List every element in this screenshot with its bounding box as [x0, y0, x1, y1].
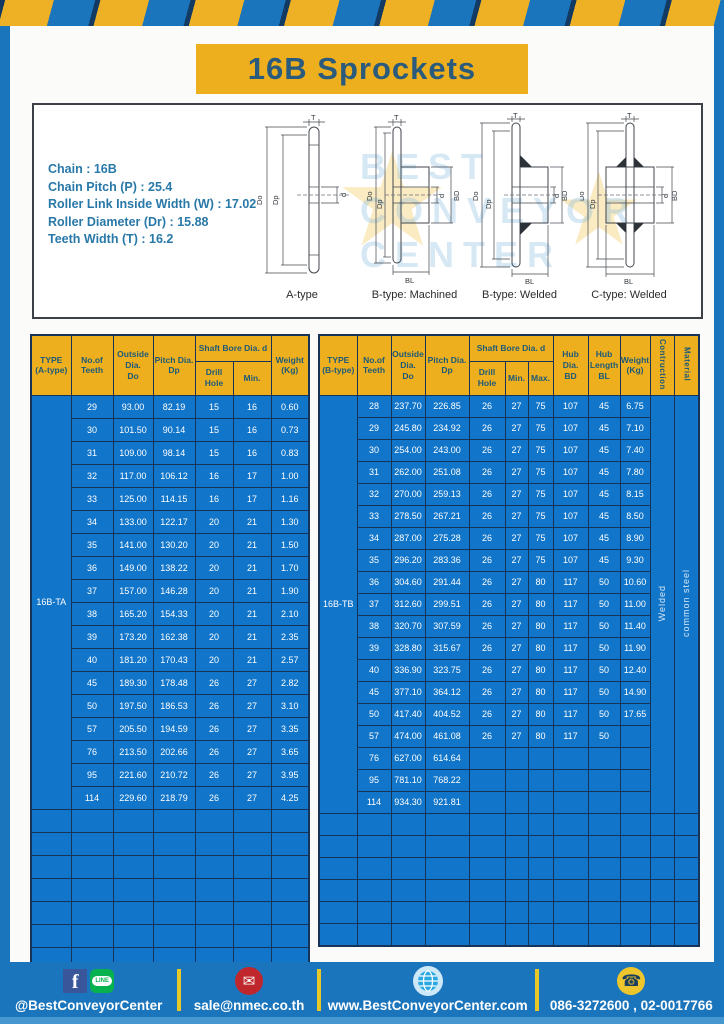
table-cell: 27 — [233, 717, 271, 740]
table-cell: 162.38 — [153, 625, 195, 648]
table-cell: 40 — [357, 659, 391, 681]
table-cell: 218.79 — [153, 786, 195, 809]
svg-text:BD: BD — [670, 190, 678, 201]
table-cell: 38 — [71, 602, 113, 625]
table-cell: 16 — [233, 441, 271, 464]
table-cell: 80 — [528, 659, 553, 681]
svg-text:BD: BD — [560, 190, 567, 201]
table-row: 31109.0098.1415160.83 — [31, 441, 309, 464]
table-cell: 45 — [588, 417, 620, 439]
table-row: 39328.80315.672627801175011.90 — [319, 637, 699, 659]
table-cell: 226.85 — [425, 395, 469, 417]
table-row: 45377.10364.122627801175014.90 — [319, 681, 699, 703]
table-cell — [505, 813, 528, 835]
table-cell: 117 — [553, 725, 588, 747]
table-cell — [469, 923, 505, 946]
table-cell: 26 — [195, 671, 233, 694]
table-row: 30101.5090.1415160.73 — [31, 418, 309, 441]
table-cell: 95 — [71, 763, 113, 786]
table-cell: 80 — [528, 725, 553, 747]
table-cell: 2.57 — [271, 648, 309, 671]
table-cell — [674, 813, 699, 835]
table-cell: 38 — [357, 615, 391, 637]
table-cell — [195, 924, 233, 947]
table-row: 36149.00138.2220211.70 — [31, 556, 309, 579]
table-cell: 37 — [71, 579, 113, 602]
table-cell: 82.19 — [153, 395, 195, 418]
footer-social[interactable]: f LINE @BestConveyorCenter — [0, 962, 177, 1017]
table-cell: 90.14 — [153, 418, 195, 441]
mail-icon[interactable]: ✉ — [235, 967, 263, 995]
table-row: 40181.20170.4320212.57 — [31, 648, 309, 671]
table-cell: 315.67 — [425, 637, 469, 659]
table-cell: 114 — [357, 791, 391, 813]
table-cell — [528, 857, 553, 879]
table-cell — [233, 901, 271, 924]
table-cell: 254.00 — [391, 439, 425, 461]
table-cell — [650, 813, 674, 835]
table-cell: 259.13 — [425, 483, 469, 505]
table-cell — [505, 791, 528, 813]
col-header-shaft-bore: Shaft Bore Dia. d — [469, 335, 553, 361]
table-cell: 0.60 — [271, 395, 309, 418]
table-cell: 149.00 — [113, 556, 153, 579]
table-row: 34287.00275.28262775107458.90 — [319, 527, 699, 549]
table-cell — [588, 769, 620, 791]
table-cell — [620, 769, 650, 791]
table-cell: 20 — [195, 510, 233, 533]
table-cell: 26 — [469, 395, 505, 417]
diagram-a-type: T Do Dp d A-type — [247, 113, 357, 301]
table-cell — [319, 901, 357, 923]
phone-numbers[interactable]: 086-3272600 , 02-0017766 — [550, 998, 713, 1013]
table-cell: 283.36 — [425, 549, 469, 571]
table-cell — [319, 813, 357, 835]
table-cell: 26 — [469, 725, 505, 747]
table-cell — [113, 878, 153, 901]
table-cell — [620, 901, 650, 923]
table-cell — [553, 813, 588, 835]
table-cell — [425, 901, 469, 923]
table-cell — [528, 879, 553, 901]
svg-text:Do: Do — [472, 191, 480, 201]
table-cell: 141.00 — [113, 533, 153, 556]
table-cell — [553, 747, 588, 769]
table-cell: 15 — [195, 441, 233, 464]
table-cell: 336.90 — [391, 659, 425, 681]
table-cell — [505, 835, 528, 857]
table-cell — [553, 879, 588, 901]
col-header-max: Max. — [528, 361, 553, 395]
table-cell: 15 — [195, 418, 233, 441]
sprocket-c-welded-drawing: T Do Dp d BD BL — [580, 113, 678, 285]
page-title-box: 16B Sprockets — [196, 44, 528, 94]
table-cell: 107 — [553, 439, 588, 461]
table-row: 50417.40404.522627801175017.65 — [319, 703, 699, 725]
table-cell — [425, 923, 469, 946]
table-cell — [271, 855, 309, 878]
empty-table-row — [31, 855, 309, 878]
table-row: 40336.90323.752627801175012.40 — [319, 659, 699, 681]
svg-text:Do: Do — [580, 191, 586, 201]
table-cell: 291.44 — [425, 571, 469, 593]
table-cell — [528, 747, 553, 769]
table-cell — [31, 855, 71, 878]
col-header-outside-dia: Outside Dia. Do — [391, 335, 425, 395]
table-cell: 122.17 — [153, 510, 195, 533]
table-cell: 26 — [469, 549, 505, 571]
diagram-c-welded: T Do Dp d BD BL C-type: — [580, 113, 678, 301]
table-cell: 76 — [71, 740, 113, 763]
globe-icon[interactable] — [413, 966, 443, 996]
svg-text:Dp: Dp — [271, 195, 280, 205]
table-row: 29245.80234.92262775107457.10 — [319, 417, 699, 439]
email-address[interactable]: sale@nmec.co.th — [194, 998, 305, 1013]
svg-text:T: T — [311, 113, 316, 122]
table-cell: 278.50 — [391, 505, 425, 527]
table-cell: 26 — [195, 694, 233, 717]
table-row: 35296.20283.36262775107459.30 — [319, 549, 699, 571]
table-cell — [153, 901, 195, 924]
table-row: 57474.00461.0826278011750 — [319, 725, 699, 747]
table-cell — [620, 813, 650, 835]
table-cell — [71, 832, 113, 855]
empty-table-row — [319, 857, 699, 879]
table-cell: 117 — [553, 637, 588, 659]
table-cell — [31, 878, 71, 901]
diagram-caption: B-type: Machined — [372, 289, 458, 301]
empty-table-row — [319, 923, 699, 946]
table-cell — [391, 879, 425, 901]
table-cell — [588, 791, 620, 813]
table-row: 76213.50202.6626273.65 — [31, 740, 309, 763]
table-cell: 461.08 — [425, 725, 469, 747]
table-cell — [319, 923, 357, 946]
table-cell: 178.48 — [153, 671, 195, 694]
table-cell — [425, 879, 469, 901]
facebook-icon[interactable]: f — [63, 969, 87, 993]
table-cell — [650, 879, 674, 901]
table-cell: 21 — [233, 625, 271, 648]
table-cell — [71, 924, 113, 947]
table-cell: 21 — [233, 556, 271, 579]
table-row: 16B-TA2993.0082.1915160.60 — [31, 395, 309, 418]
table-cell — [113, 855, 153, 878]
table-cell: 50 — [588, 725, 620, 747]
table-row: 38320.70307.592627801175011.40 — [319, 615, 699, 637]
table-cell — [271, 924, 309, 947]
table-cell: 93.00 — [113, 395, 153, 418]
table-cell: 107 — [553, 549, 588, 571]
table-cell: 75 — [528, 395, 553, 417]
table-cell — [528, 813, 553, 835]
table-cell — [469, 769, 505, 791]
empty-table-row — [31, 924, 309, 947]
footer-bottom-strip — [0, 1017, 724, 1024]
table-cell — [469, 813, 505, 835]
table-cell: 50 — [357, 703, 391, 725]
table-cell: 98.14 — [153, 441, 195, 464]
svg-text:BL: BL — [405, 276, 414, 285]
table-row: 57205.50194.5926273.35 — [31, 717, 309, 740]
table-cell: 50 — [588, 703, 620, 725]
type-merged-cell: 16B-TB — [319, 395, 357, 813]
table-cell — [588, 747, 620, 769]
table-cell: 45 — [71, 671, 113, 694]
table-cell: 117.00 — [113, 464, 153, 487]
table-cell: 16 — [195, 487, 233, 510]
table-cell: 312.60 — [391, 593, 425, 615]
table-cell: 80 — [528, 681, 553, 703]
table-cell: 27 — [505, 395, 528, 417]
table-cell — [357, 835, 391, 857]
col-header-teeth: No.of Teeth — [71, 335, 113, 395]
table-cell: 165.20 — [113, 602, 153, 625]
table-cell — [505, 769, 528, 791]
table-cell: 26 — [469, 615, 505, 637]
table-cell: 1.50 — [271, 533, 309, 556]
table-row: 95221.60210.7226273.95 — [31, 763, 309, 786]
table-cell: 26 — [469, 703, 505, 725]
table-row: 37312.60299.512627801175011.00 — [319, 593, 699, 615]
diagram-caption: B-type: Welded — [482, 289, 557, 301]
table-cell — [553, 901, 588, 923]
table-cell — [357, 813, 391, 835]
table-cell: 107 — [553, 417, 588, 439]
construction-merged-cell: Welded — [650, 395, 674, 813]
table-cell: 221.60 — [113, 763, 153, 786]
phone-icon[interactable]: ☎ — [617, 967, 645, 995]
table-cell: 26 — [469, 571, 505, 593]
table-cell: 768.22 — [425, 769, 469, 791]
table-row: 31262.00251.08262775107457.80 — [319, 461, 699, 483]
table-cell: 75 — [528, 417, 553, 439]
table-cell — [153, 878, 195, 901]
table-cell: 34 — [357, 527, 391, 549]
table-cell — [391, 835, 425, 857]
table-cell — [271, 878, 309, 901]
table-cell — [357, 857, 391, 879]
chain-specs: Chain : 16B Chain Pitch (P) : 25.4 Rolle… — [48, 161, 256, 249]
table-cell — [505, 901, 528, 923]
table-cell — [620, 857, 650, 879]
table-cell: 133.00 — [113, 510, 153, 533]
table-cell: 2.35 — [271, 625, 309, 648]
table-cell: 101.50 — [113, 418, 153, 441]
svg-text:BL: BL — [525, 277, 534, 285]
table-cell — [31, 809, 71, 832]
table-cell: 31 — [71, 441, 113, 464]
table-cell: 75 — [528, 483, 553, 505]
table-cell: 8.90 — [620, 527, 650, 549]
table-cell: 75 — [528, 549, 553, 571]
table-cell — [528, 923, 553, 946]
website-url[interactable]: www.BestConveyorCenter.com — [328, 998, 528, 1013]
table-cell: 20 — [195, 579, 233, 602]
svg-text:Dp: Dp — [588, 199, 597, 209]
table-cell — [233, 924, 271, 947]
svg-text:T: T — [627, 113, 632, 120]
table-cell: 80 — [528, 593, 553, 615]
footer-email[interactable]: ✉ sale@nmec.co.th — [181, 962, 316, 1017]
table-cell — [650, 923, 674, 946]
col-header-pitch-dia: Pitch Dia. Dp — [153, 335, 195, 395]
table-cell: 4.25 — [271, 786, 309, 809]
table-cell: 50 — [588, 659, 620, 681]
table-cell — [528, 791, 553, 813]
table-cell: 26 — [469, 659, 505, 681]
col-header-min: Min. — [505, 361, 528, 395]
empty-table-row — [319, 835, 699, 857]
table-cell — [153, 855, 195, 878]
table-row: 39173.20162.3820212.35 — [31, 625, 309, 648]
table-cell: 50 — [588, 681, 620, 703]
empty-table-row — [319, 813, 699, 835]
table-cell: 7.40 — [620, 439, 650, 461]
table-cell: 14.90 — [620, 681, 650, 703]
table-cell: 107 — [553, 395, 588, 417]
table-cell — [357, 879, 391, 901]
table-cell: 11.40 — [620, 615, 650, 637]
table-cell: 197.50 — [113, 694, 153, 717]
table-cell — [233, 809, 271, 832]
table-cell — [71, 901, 113, 924]
table-cell: 27 — [233, 740, 271, 763]
empty-table-row — [31, 832, 309, 855]
table-cell — [153, 832, 195, 855]
sprocket-b-machined-drawing: T Do Dp d BD BL — [367, 113, 462, 285]
table-cell: 417.40 — [391, 703, 425, 725]
table-cell: 26 — [195, 740, 233, 763]
table-cell: 0.73 — [271, 418, 309, 441]
table-cell: 80 — [528, 703, 553, 725]
table-cell — [153, 809, 195, 832]
footer: f LINE @BestConveyorCenter ✉ sale@nmec.c… — [0, 962, 724, 1024]
table-cell — [674, 879, 699, 901]
table-cell: 45 — [588, 505, 620, 527]
table-cell: 107 — [553, 461, 588, 483]
svg-text:Dp: Dp — [375, 199, 384, 209]
table-cell: 26 — [469, 461, 505, 483]
table-cell: 21 — [233, 533, 271, 556]
content-area: 16B Sprockets ★ ★ BEST CONVEYOR CENTER C… — [10, 26, 714, 962]
table-cell: 404.52 — [425, 703, 469, 725]
table-cell: 304.60 — [391, 571, 425, 593]
table-cell — [153, 924, 195, 947]
table-cell: 11.90 — [620, 637, 650, 659]
table-cell — [588, 835, 620, 857]
table-cell: 45 — [588, 461, 620, 483]
table-cell: 921.81 — [425, 791, 469, 813]
footer-website[interactable]: www.BestConveyorCenter.com — [321, 962, 535, 1017]
svg-text:BL: BL — [624, 277, 633, 285]
table-row: 50197.50186.5326273.10 — [31, 694, 309, 717]
page-title: 16B Sprockets — [248, 51, 476, 87]
table-cell: 30 — [71, 418, 113, 441]
table-cell — [319, 879, 357, 901]
table-cell: 1.16 — [271, 487, 309, 510]
table-cell: 50 — [588, 593, 620, 615]
table-cell: 27 — [505, 659, 528, 681]
table-cell: 170.43 — [153, 648, 195, 671]
table-cell — [233, 878, 271, 901]
table-cell — [620, 923, 650, 946]
table-cell — [71, 855, 113, 878]
table-cell: 45 — [588, 483, 620, 505]
table-cell: 189.30 — [113, 671, 153, 694]
table-cell: 237.70 — [391, 395, 425, 417]
svg-text:Dp: Dp — [484, 199, 493, 209]
table-cell — [233, 855, 271, 878]
empty-table-row — [31, 901, 309, 924]
table-cell: 154.33 — [153, 602, 195, 625]
catalog-page: 16B Sprockets ★ ★ BEST CONVEYOR CENTER C… — [0, 0, 724, 1024]
table-cell: 26 — [469, 527, 505, 549]
social-handle[interactable]: @BestConveyorCenter — [15, 998, 162, 1013]
table-cell: 27 — [505, 461, 528, 483]
table-cell: 57 — [71, 717, 113, 740]
table-cell: 3.65 — [271, 740, 309, 763]
diagram-b-welded: T Do Dp d BD BL B-type: — [472, 113, 567, 301]
table-cell: 20 — [195, 533, 233, 556]
col-header-material: Material — [674, 335, 699, 395]
spec-line-chain: Chain : 16B — [48, 161, 256, 179]
table-cell — [528, 835, 553, 857]
table-row: 33125.00114.1516171.16 — [31, 487, 309, 510]
col-header-weight: Weight (Kg) — [620, 335, 650, 395]
table-cell: 21 — [233, 602, 271, 625]
table-cell: 8.50 — [620, 505, 650, 527]
table-cell: 27 — [505, 483, 528, 505]
table-cell: 29 — [357, 417, 391, 439]
footer-phone[interactable]: ☎ 086-3272600 , 02-0017766 — [539, 962, 724, 1017]
table-cell — [113, 924, 153, 947]
table-cell — [71, 878, 113, 901]
table-cell: 2.10 — [271, 602, 309, 625]
table-cell — [650, 857, 674, 879]
table-cell: 229.60 — [113, 786, 153, 809]
table-cell: 3.35 — [271, 717, 309, 740]
table-cell: 17 — [233, 487, 271, 510]
table-cell: 8.15 — [620, 483, 650, 505]
table-cell — [620, 747, 650, 769]
col-header-construction: Contruction — [650, 335, 674, 395]
line-icon[interactable]: LINE — [90, 969, 114, 993]
table-cell: 45 — [588, 439, 620, 461]
empty-table-row — [31, 809, 309, 832]
table-row: 34133.00122.1720211.30 — [31, 510, 309, 533]
table-cell — [553, 835, 588, 857]
spec-line-teeth-width: Teeth Width (T) : 16.2 — [48, 231, 256, 249]
table-cell: 80 — [528, 571, 553, 593]
table-cell: 36 — [71, 556, 113, 579]
table-cell: 39 — [71, 625, 113, 648]
table-cell: 27 — [505, 549, 528, 571]
table-cell: 173.20 — [113, 625, 153, 648]
table-cell: 21 — [233, 510, 271, 533]
table-cell: 34 — [71, 510, 113, 533]
table-cell — [71, 809, 113, 832]
table-cell: 117 — [553, 681, 588, 703]
col-header-min: Min. — [233, 361, 271, 395]
spec-line-pitch: Chain Pitch (P) : 25.4 — [48, 179, 256, 197]
table-cell: 26 — [469, 439, 505, 461]
table-cell: 114.15 — [153, 487, 195, 510]
svg-text:T: T — [513, 113, 518, 120]
col-header-type: TYPE (B-type) — [319, 335, 357, 395]
table-cell: 107 — [553, 527, 588, 549]
table-cell: 27 — [505, 417, 528, 439]
